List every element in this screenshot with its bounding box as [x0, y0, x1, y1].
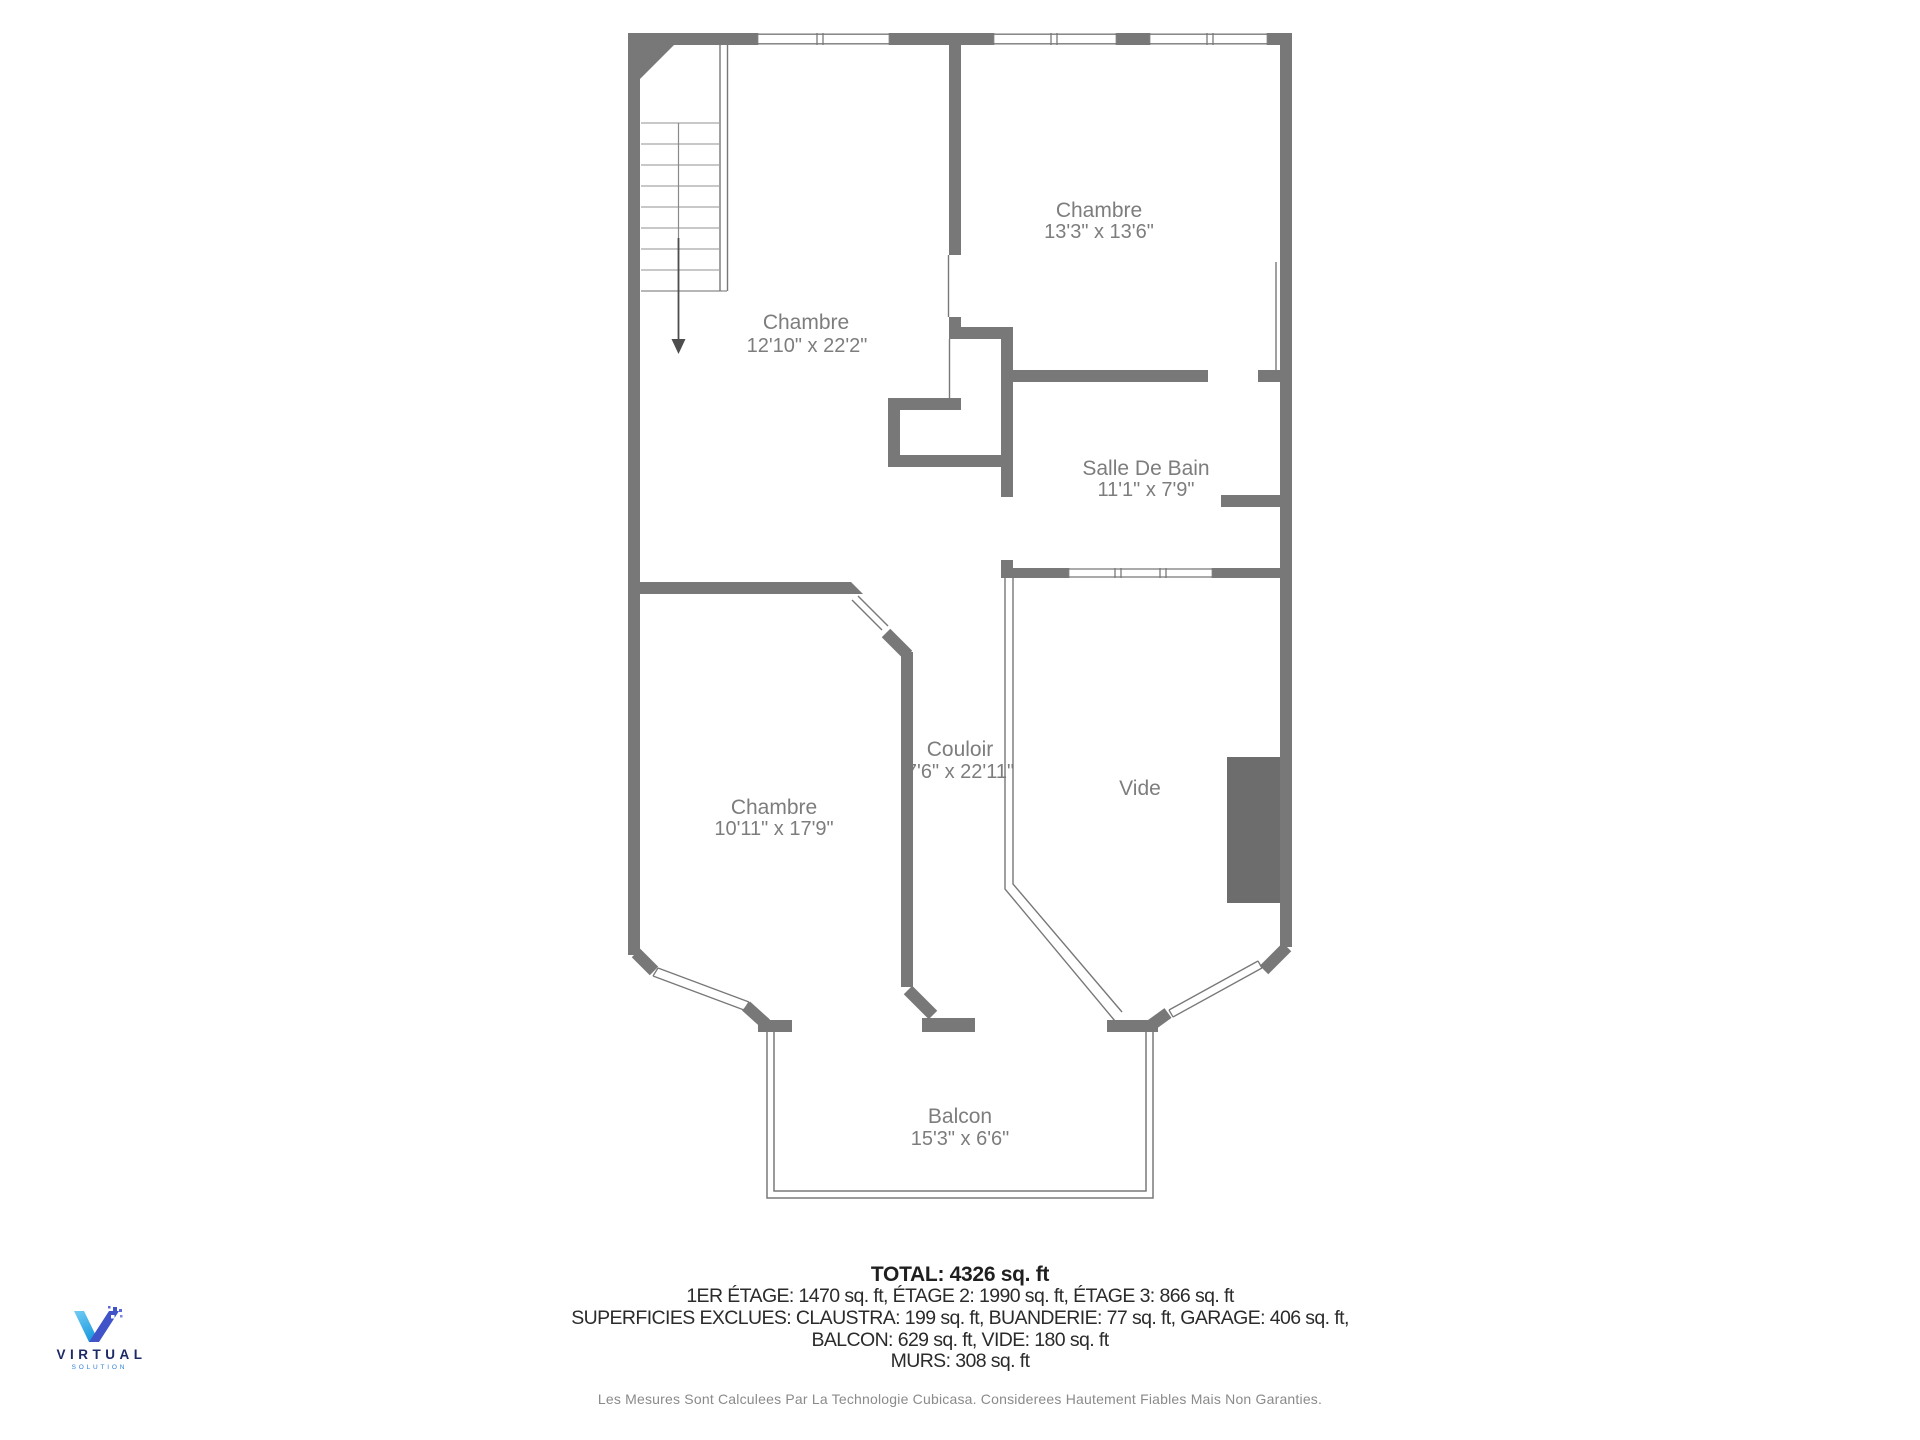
window [993, 33, 1117, 45]
area-summary: TOTAL: 4326 sq. ft 1ER ÉTAGE: 1470 sq. f… [0, 1264, 1920, 1373]
room-dims: 7'6" x 22'11" [906, 761, 1014, 783]
window [1149, 33, 1268, 45]
virtual-solution-logo: VIRTUAL SOLUTION [52, 1306, 144, 1371]
floor-areas: 1ER ÉTAGE: 1470 sq. ft, ÉTAGE 2: 1990 sq… [0, 1286, 1920, 1308]
room-label: Balcon [928, 1105, 992, 1128]
room-dims: 11'1" x 7'9" [1097, 479, 1194, 501]
floorplan-drawing: Chambre 13'3" x 13'6" Chambre 12'10" x 2… [0, 0, 1920, 1440]
room-label: Vide [1119, 777, 1161, 800]
room-dims: 12'10" x 22'2" [747, 335, 868, 357]
window [757, 33, 890, 45]
excluded-areas: SUPERFICIES EXCLUES: CLAUSTRA: 199 sq. f… [0, 1308, 1920, 1330]
room-dims: 10'11" x 17'9" [714, 818, 833, 840]
logo-brand-text: VIRTUAL [52, 1347, 144, 1362]
room-label: Chambre [731, 796, 817, 819]
logo-sub-text: SOLUTION [52, 1364, 144, 1371]
room-dims: 13'3" x 13'6" [1044, 221, 1154, 243]
disclaimer-text: Les Mesures Sont Calculees Par La Techno… [0, 1391, 1920, 1407]
total-area: TOTAL: 4326 sq. ft [0, 1264, 1920, 1286]
logo-v-icon [72, 1306, 124, 1344]
stair-down-arrow [672, 238, 686, 354]
bay-window [1169, 961, 1262, 1017]
room-label: Chambre [1056, 199, 1142, 222]
vide-outline [1005, 578, 1122, 1021]
room-dims: 15'3" x 6'6" [911, 1128, 1010, 1150]
staircase [641, 45, 728, 291]
window [1068, 568, 1213, 578]
shaft-block [1227, 757, 1280, 903]
floorplan-page: Chambre 13'3" x 13'6" Chambre 12'10" x 2… [0, 0, 1920, 1440]
walls-area: MURS: 308 sq. ft [0, 1351, 1920, 1373]
excluded-areas-continued: BALCON: 629 sq. ft, VIDE: 180 sq. ft [0, 1330, 1920, 1352]
room-label: Couloir [927, 738, 994, 761]
bay-window [653, 968, 749, 1010]
room-label: Salle De Bain [1082, 457, 1209, 480]
room-label: Chambre [763, 311, 849, 334]
room-labels: Chambre 13'3" x 13'6" Chambre 12'10" x 2… [714, 199, 1209, 1150]
